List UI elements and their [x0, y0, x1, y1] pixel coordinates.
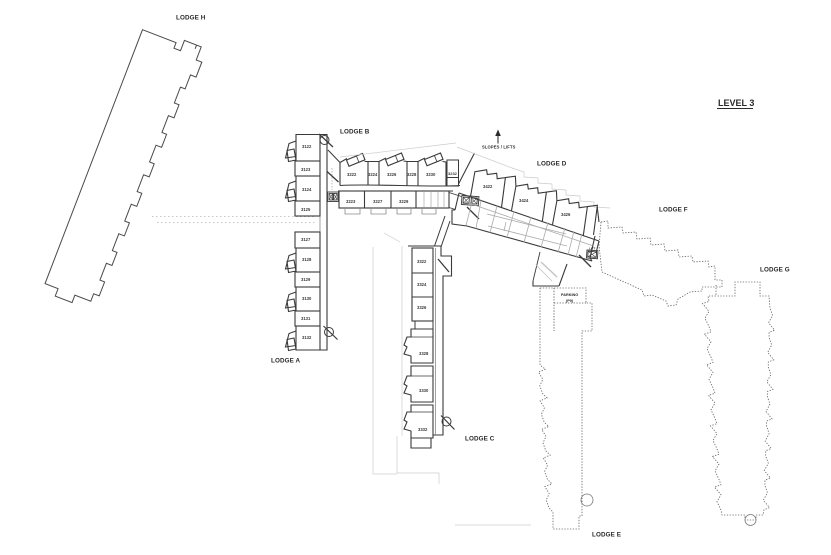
svg-text:LODGE E: LODGE E — [592, 532, 621, 539]
svg-text:LODGE F: LODGE F — [659, 207, 688, 214]
svg-text:3122: 3122 — [302, 144, 312, 149]
svg-text:3224: 3224 — [368, 172, 378, 177]
svg-text:(P9): (P9) — [566, 299, 574, 303]
svg-text:LEVEL 3: LEVEL 3 — [718, 98, 754, 108]
svg-text:3128: 3128 — [302, 257, 312, 262]
svg-text:LODGE A: LODGE A — [271, 358, 301, 365]
svg-text:3230: 3230 — [426, 172, 436, 177]
svg-text:3330: 3330 — [419, 388, 429, 393]
svg-text:3123: 3123 — [301, 167, 311, 172]
svg-text:3222: 3222 — [347, 172, 357, 177]
svg-text:3229: 3229 — [399, 199, 409, 204]
svg-text:LODGE H: LODGE H — [176, 15, 206, 22]
svg-text:3227: 3227 — [373, 199, 383, 204]
svg-text:3125: 3125 — [301, 207, 311, 212]
svg-text:3228: 3228 — [407, 172, 417, 177]
svg-text:3324: 3324 — [417, 282, 427, 287]
svg-text:LIFT: LIFT — [589, 247, 595, 251]
svg-text:LODGE G: LODGE G — [760, 267, 790, 274]
svg-text:3129: 3129 — [301, 277, 311, 282]
svg-text:3132: 3132 — [302, 335, 312, 340]
svg-text:3232: 3232 — [448, 171, 458, 176]
svg-text:3131: 3131 — [301, 316, 311, 321]
svg-text:LODGE B: LODGE B — [340, 129, 370, 136]
svg-text:3332: 3332 — [418, 427, 428, 432]
svg-text:3124: 3124 — [302, 187, 312, 192]
svg-text:3422: 3422 — [483, 184, 493, 189]
svg-text:3424: 3424 — [519, 198, 529, 203]
svg-text:3127: 3127 — [301, 237, 311, 242]
svg-text:PARKING: PARKING — [561, 293, 578, 297]
svg-text:SLOPES / LIFTS: SLOPES / LIFTS — [482, 145, 516, 150]
svg-text:LODGE D: LODGE D — [537, 161, 567, 168]
svg-text:3223: 3223 — [346, 199, 356, 204]
svg-text:3226: 3226 — [387, 172, 397, 177]
svg-text:3326: 3326 — [417, 305, 427, 310]
svg-text:3328: 3328 — [419, 351, 429, 356]
svg-text:3322: 3322 — [417, 259, 427, 264]
svg-text:LODGE C: LODGE C — [465, 436, 495, 443]
svg-text:3130: 3130 — [302, 296, 312, 301]
svg-text:3426: 3426 — [561, 212, 571, 217]
